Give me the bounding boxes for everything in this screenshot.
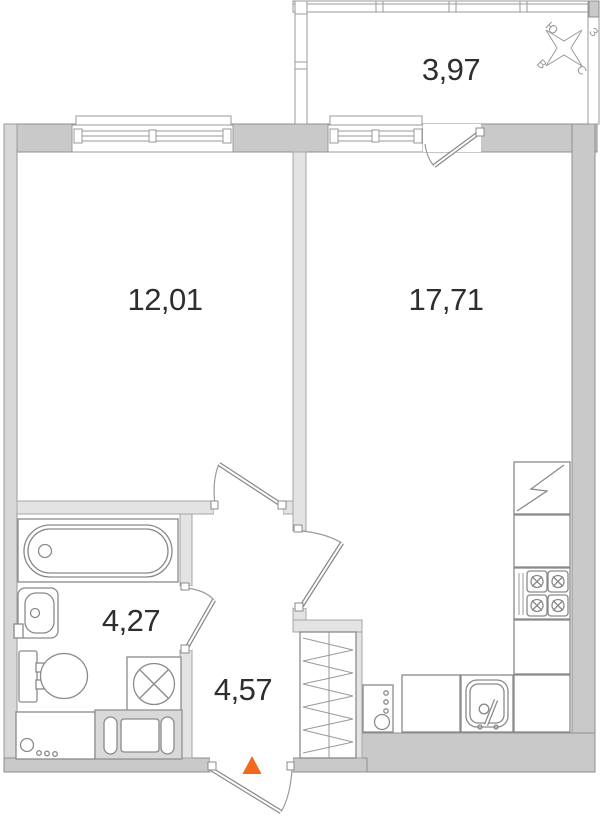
kitchen-counter-mid: [514, 515, 570, 567]
kitchen-appliance-panel: [363, 685, 393, 732]
room-label-bathroom: 4,27: [102, 603, 160, 638]
wall-closet-top: [293, 620, 362, 632]
toilet-bowl: [41, 654, 88, 699]
window-mullion: [372, 130, 379, 142]
stove: [514, 568, 570, 619]
door-hinge: [278, 501, 286, 509]
kitchen-unit: [514, 620, 570, 674]
window-kitchen: [328, 116, 423, 152]
balcony-window-right: [588, 1, 599, 124]
door-balcony: [423, 124, 484, 166]
wall-bottom-middle: [293, 758, 367, 772]
door-hinge: [208, 762, 216, 770]
washing-machine: [127, 657, 181, 711]
window-mullion: [149, 130, 156, 142]
kitchen-counter-corner: [514, 675, 570, 732]
wall-bottom-left: [4, 758, 210, 772]
floor-plan: 3,97 12,01 17,71 4,27 4,57 Ю З В С: [0, 0, 600, 818]
wardrobe: [300, 632, 356, 758]
wall-room-divider: [293, 152, 306, 531]
floor-plan-canvas: 3,97 12,01 17,71 4,27 4,57 Ю З В С: [0, 0, 600, 818]
toilet: [19, 651, 88, 702]
bathtub: [18, 519, 178, 582]
door-hinge: [295, 603, 303, 611]
room-label-kitchen: 17,71: [408, 282, 483, 317]
wall-bottom-right: [358, 733, 595, 772]
door-hinge: [181, 645, 189, 653]
window-living-room: [72, 116, 233, 152]
door-kitchen: [293, 525, 342, 611]
compass-letter-south: Ю: [543, 19, 561, 37]
wall-left-party: [4, 124, 17, 772]
wall-hall-top: [17, 501, 214, 514]
door-hinge: [476, 128, 484, 136]
compass-letter-east: В: [534, 56, 550, 72]
room-label-balcony: 3,97: [422, 52, 480, 87]
door-living-room: [211, 464, 286, 515]
room-label-hallway: 4,57: [214, 672, 272, 707]
room-label-living-room: 12,01: [127, 282, 202, 317]
wall-bath-east-upper: [180, 514, 192, 586]
bathroom-cabinet: [95, 710, 182, 759]
kitchen-counter-left: [402, 675, 460, 732]
bathroom-counter: [16, 712, 95, 759]
door-bathroom: [180, 583, 214, 653]
wall-right-exterior: [572, 124, 595, 772]
washbasin: [14, 588, 58, 638]
wall-closet-right: [356, 632, 362, 758]
toilet-tank: [19, 651, 37, 702]
balcony-corner-post: [589, 1, 599, 17]
kitchen-sink: [461, 675, 513, 732]
fridge: [514, 462, 570, 514]
balcony-window-top: [293, 1, 599, 12]
